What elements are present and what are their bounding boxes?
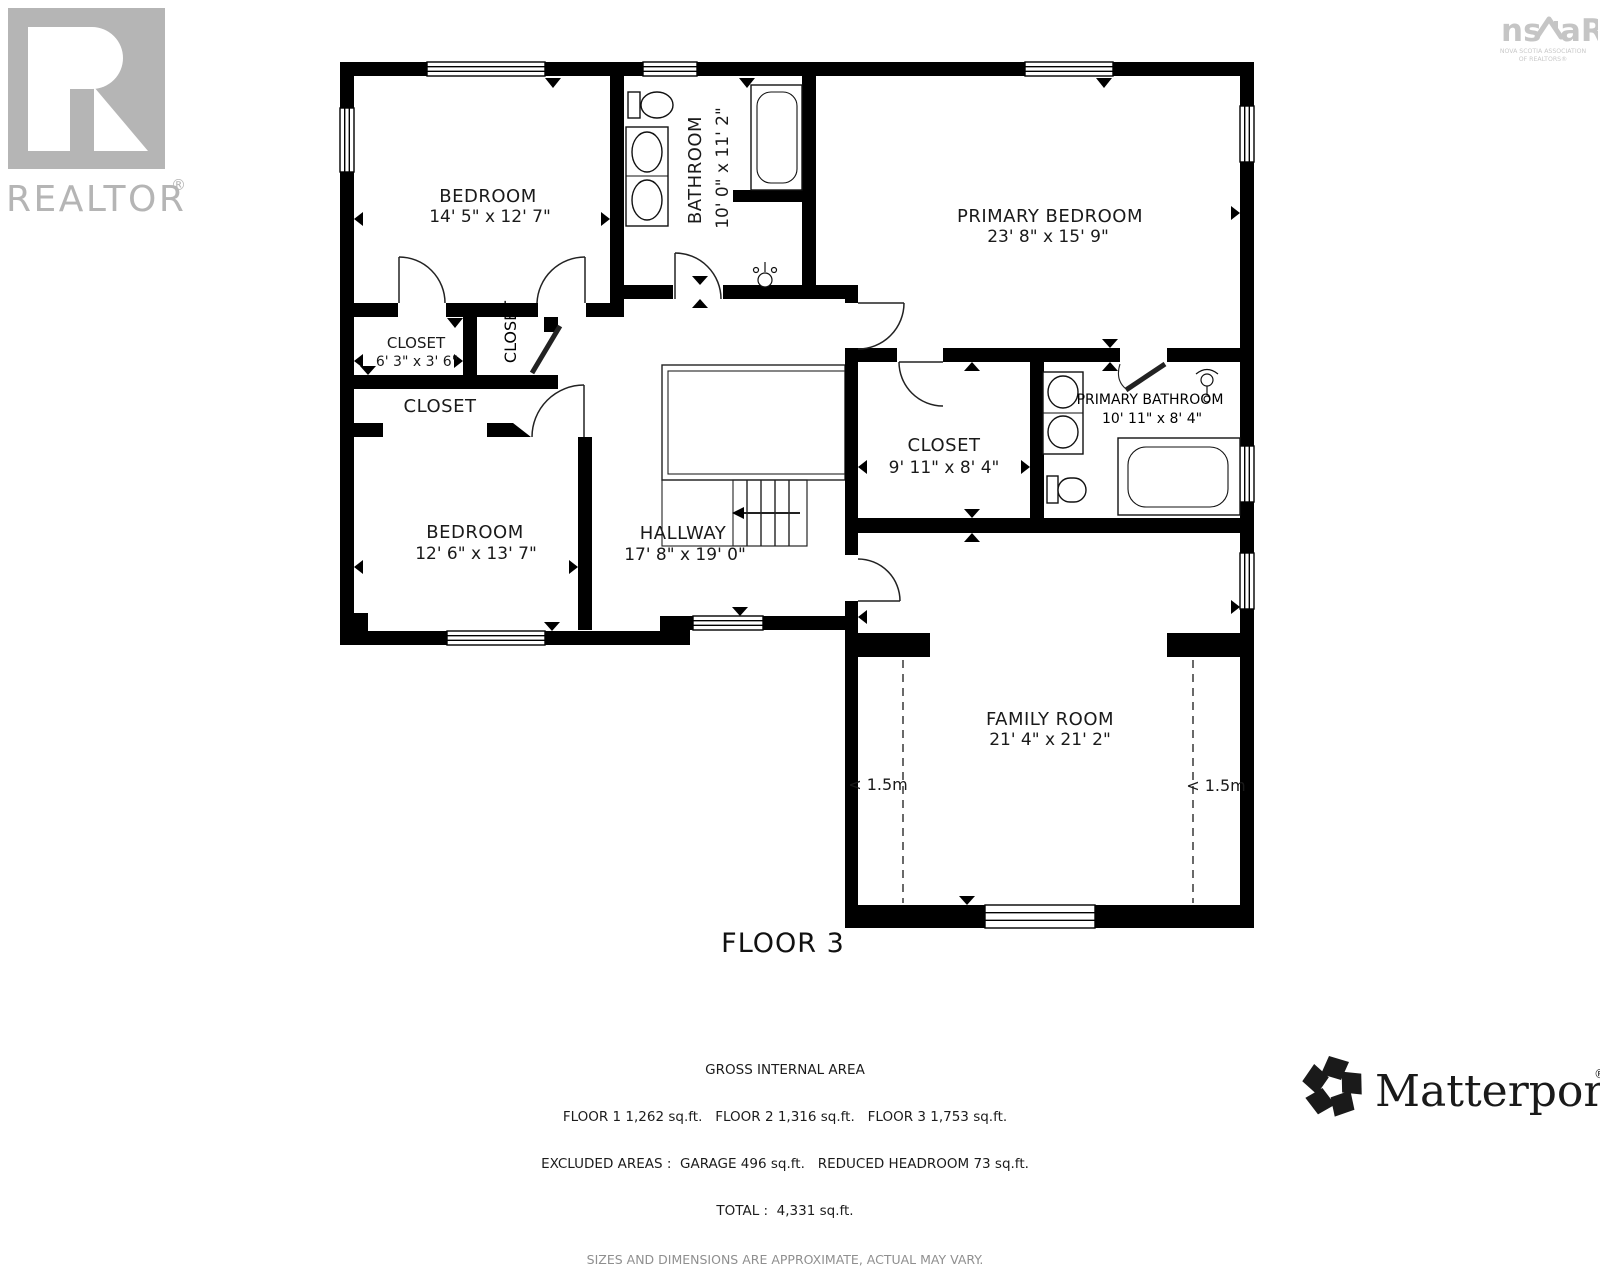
toilet-icon xyxy=(1047,476,1086,503)
room-label-bedroom1: BEDROOM xyxy=(439,186,536,207)
window xyxy=(643,62,697,76)
door xyxy=(399,257,445,303)
bathtub-icon xyxy=(751,85,802,190)
window xyxy=(340,108,354,172)
window xyxy=(1240,106,1254,162)
room-label-primary-bathroom: PRIMARY BATHROOM xyxy=(1077,392,1224,408)
floorplan-page: { "page": { "floor_title": "FLOOR 3" }, … xyxy=(0,0,1600,1131)
floor-title: FLOOR 3 xyxy=(0,928,1566,959)
door xyxy=(532,326,560,373)
room-label-closet-wide: CLOSET xyxy=(404,396,477,417)
room-label-primary-bedroom: PRIMARY BEDROOM xyxy=(957,206,1143,227)
room-label-bathroom: BATHROOM xyxy=(685,116,706,224)
headroom-annotation-right: < 1.5m xyxy=(1186,776,1246,795)
stairwell xyxy=(662,365,845,546)
window xyxy=(1240,553,1254,609)
total-area-line: TOTAL : 4,331 sq.ft. xyxy=(0,1204,1570,1220)
double-sink-vanity-icon xyxy=(1043,372,1083,454)
window xyxy=(427,62,545,76)
room-dims-closet-small: 6' 3" x 3' 6" xyxy=(376,354,458,370)
bathtub-icon xyxy=(1118,438,1240,515)
window xyxy=(1240,446,1254,502)
room-label-bedroom2: BEDROOM xyxy=(426,522,523,543)
door xyxy=(858,559,900,601)
room-dims-primary-bathroom: 10' 11" x 8' 4" xyxy=(1102,411,1202,427)
headroom-annotation-left: < 1.5m xyxy=(848,775,908,794)
room-dims-bedroom1: 14' 5" x 12' 7" xyxy=(429,207,551,227)
door xyxy=(537,257,585,303)
room-label-closet-primary: CLOSET xyxy=(908,435,981,456)
door xyxy=(899,362,943,406)
matterport-logo: Matterport ® xyxy=(1278,1040,1600,1135)
disclaimer-line: SIZES AND DIMENSIONS ARE APPROXIMATE, AC… xyxy=(0,1250,1570,1268)
door xyxy=(1118,364,1165,390)
window xyxy=(693,616,763,630)
room-dims-family-room: 21' 4" x 21' 2" xyxy=(989,730,1111,750)
room-dims-hallway: 17' 8" x 19' 0" xyxy=(624,545,746,565)
room-dims-bathroom: 10' 0" x 11' 2" xyxy=(713,107,733,229)
room-label-family-room: FAMILY ROOM xyxy=(986,709,1114,730)
room-label-hallway: HALLWAY xyxy=(640,523,727,544)
excluded-areas-line: EXCLUDED AREAS : GARAGE 496 sq.ft. REDUC… xyxy=(0,1157,1570,1173)
window xyxy=(447,631,545,645)
room-dims-bedroom2: 12' 6" x 13' 7" xyxy=(415,544,537,564)
window xyxy=(985,905,1095,928)
window xyxy=(1025,62,1113,76)
door xyxy=(532,385,584,437)
room-dims-primary-bedroom: 23' 8" x 15' 9" xyxy=(987,227,1109,247)
floorplan-drawing: BEDROOM 14' 5" x 12' 7" BATHROOM 10' 0" … xyxy=(0,0,1600,1131)
room-label-closet-small: CLOSET xyxy=(387,334,446,352)
matterport-reg-icon: ® xyxy=(1594,1067,1600,1081)
room-label-closet-vertical: CLOSET xyxy=(501,301,520,363)
toilet-icon xyxy=(628,92,673,118)
stairs-direction-arrow-icon xyxy=(732,507,744,519)
matterport-pinwheel-icon xyxy=(1300,1056,1368,1121)
door xyxy=(858,303,904,349)
matterport-logo-text: Matterport xyxy=(1375,1066,1600,1117)
double-sink-vanity-icon xyxy=(626,127,668,226)
room-dims-closet-primary: 9' 11" x 8' 4" xyxy=(889,458,1000,478)
headroom-boundary-lines xyxy=(903,660,1193,903)
ceiling-light-icon xyxy=(754,262,777,287)
